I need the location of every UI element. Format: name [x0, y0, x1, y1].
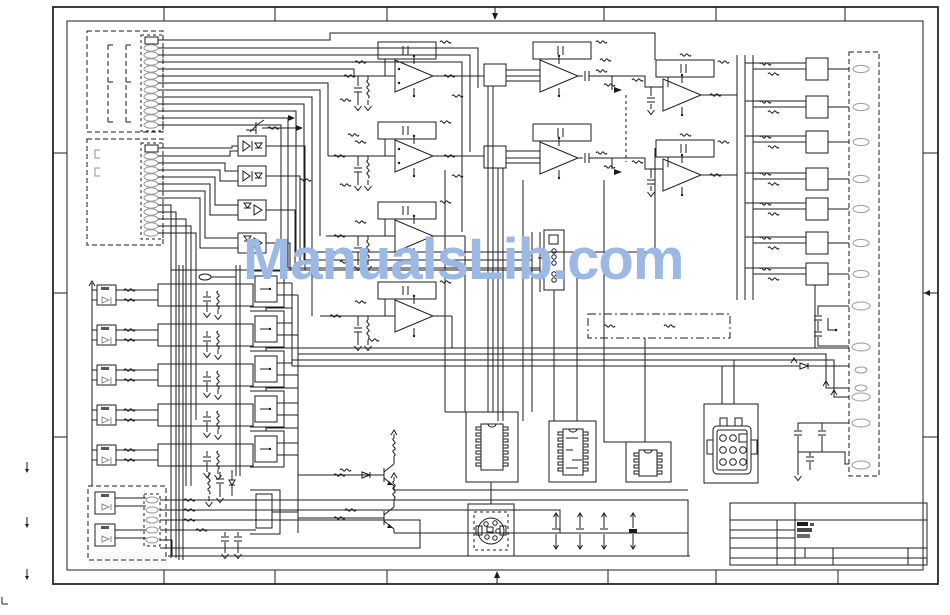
connector-right-edge [849, 52, 879, 476]
io-row [92, 348, 298, 400]
optocoupler-icon [243, 141, 262, 151]
opamp-stage-6 [533, 124, 663, 197]
ic-dip8 [626, 442, 671, 482]
right-driver-grid [737, 55, 849, 348]
filter-capacitors [552, 338, 645, 549]
opamp-stage-7 [656, 60, 737, 116]
connector-pins [144, 153, 158, 236]
ic-dip16-a [466, 412, 518, 482]
title-block-logo [797, 522, 814, 538]
right-edge-subcircuits [794, 306, 849, 481]
round-connector [468, 482, 514, 556]
center-bus-verticals [445, 170, 626, 442]
rect-12pin-connector [704, 360, 758, 483]
wire-bus-left [165, 146, 240, 560]
signal-bus-right [292, 348, 849, 397]
schematic-drawing [0, 0, 950, 615]
opamp-stage-5 [533, 42, 663, 162]
opamp-stage-8 [656, 140, 737, 196]
connector-left-mid [87, 139, 165, 245]
margin-marks [2, 462, 29, 604]
bottom-left-wiring [160, 470, 690, 559]
title-block [730, 503, 927, 565]
io-row [92, 428, 298, 480]
watermark-text: ManualsLib.com [243, 226, 683, 293]
dashdot-option-box [588, 314, 730, 338]
opamp-stage-2 [328, 122, 484, 191]
bottom-left-connector-block [88, 486, 166, 560]
ic-dip16-b [549, 421, 596, 482]
connector-left-top [87, 31, 165, 132]
io-row [92, 308, 298, 360]
schematic-sheet: ManualsLib.com [0, 0, 950, 615]
io-row [92, 388, 298, 440]
connector-pins [144, 45, 158, 128]
